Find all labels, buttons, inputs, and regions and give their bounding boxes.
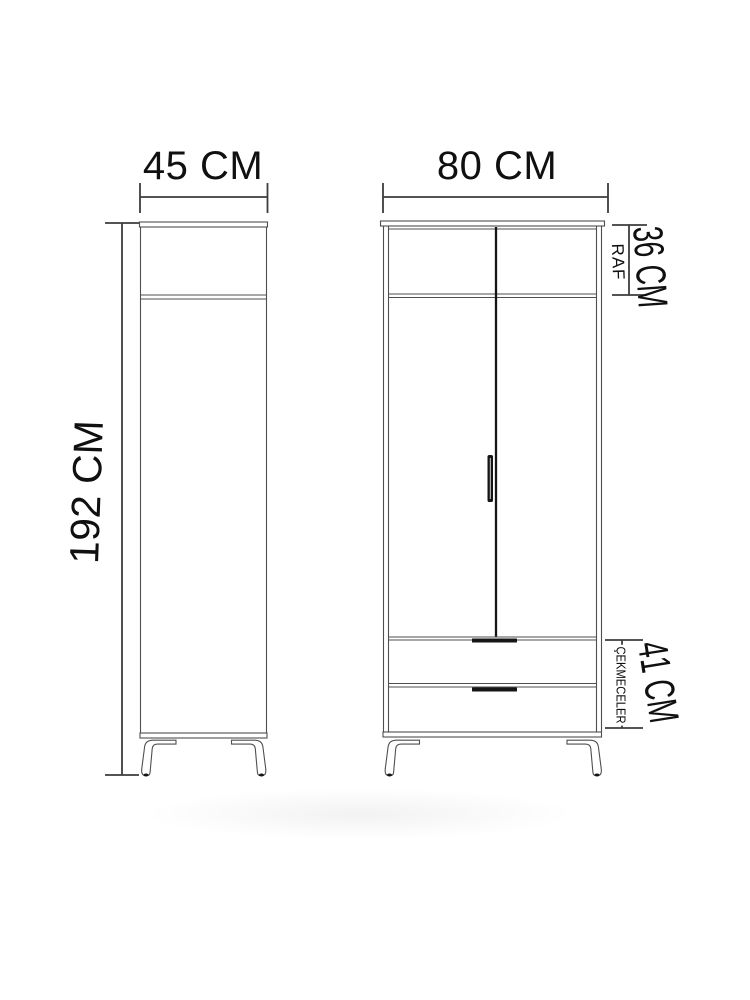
drawers-name-label: ÇEKMECELER	[615, 645, 628, 725]
front-shelf-line	[389, 294, 597, 298]
front-width-dimension-label: 80 CM	[437, 146, 557, 186]
side-width-dimension-label: 45 CM	[143, 146, 263, 186]
drawer-divider-line	[389, 684, 597, 688]
front-legs	[385, 740, 601, 776]
side-back-leg	[232, 740, 266, 775]
side-bottom-panel	[140, 733, 267, 738]
side-view-drawing	[140, 222, 268, 777]
door-handle	[488, 455, 494, 502]
dimension-lines	[105, 183, 647, 775]
front-bottom-panel	[383, 732, 602, 737]
upper-drawer-handle	[472, 639, 517, 643]
shelf-name-label: RAF	[609, 243, 627, 281]
technical-drawing	[0, 0, 750, 1000]
side-front-leg	[142, 740, 176, 775]
front-right-leg	[567, 740, 601, 775]
shelf-dimension-label: 36 CM	[626, 225, 674, 309]
wardrobe-dimension-diagram: 45 CM 80 CM 192 CM RAF 36 CM ÇEKMECELER …	[0, 0, 750, 1000]
side-top-panel	[140, 222, 268, 227]
leg-foot-tip	[143, 774, 148, 777]
leg-foot-tip	[594, 774, 599, 777]
front-left-leg	[385, 740, 419, 775]
side-shelf-line	[141, 295, 267, 299]
side-legs	[142, 740, 266, 776]
leg-foot-tip	[259, 774, 264, 777]
front-view-drawing	[381, 221, 605, 777]
drawers-dimension-label: 41 CM	[631, 638, 685, 725]
front-top-panel	[381, 221, 605, 226]
leg-foot-tip	[387, 774, 392, 777]
height-dimension-label: 192 CM	[64, 420, 110, 565]
lower-drawer-handle	[472, 688, 517, 692]
height-dimension-line	[105, 223, 139, 775]
side-body-edges	[141, 227, 267, 733]
